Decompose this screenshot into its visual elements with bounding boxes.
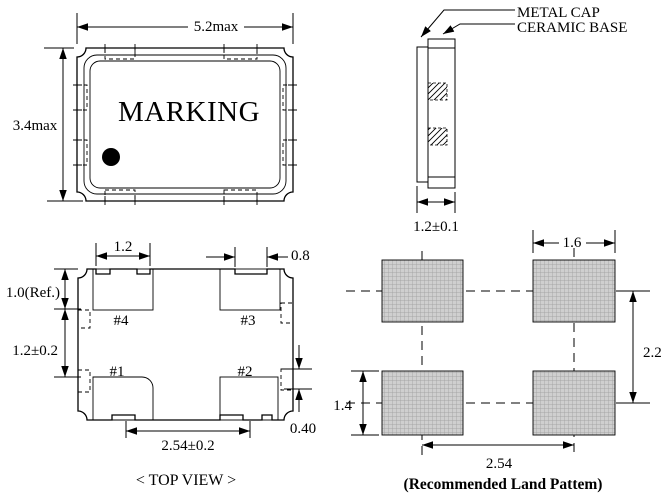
dim-package-thickness: 1.2±0.1 <box>413 186 459 235</box>
side-castellation-pad-upper <box>428 83 447 100</box>
land-pad-top-right <box>533 260 615 322</box>
dim-package-height: 3.4max <box>13 48 83 201</box>
ceramic-base-leader <box>443 24 515 34</box>
land-pad-bottom-left <box>382 371 463 435</box>
package-pad-view: #4 #3 #1 #2 1.2 0.8 1.0(Ref.) <box>6 239 316 489</box>
metal-cap-label: METAL CAP <box>517 5 600 21</box>
dim-castellation-label: 0.40 <box>290 421 316 437</box>
pin1-indicator-dot <box>102 148 120 166</box>
land-pad-top-left <box>382 260 463 322</box>
package-side-view: METAL CAP CERAMIC BASE 1.2±0.1 <box>413 5 627 235</box>
ceramic-base-label: CERAMIC BASE <box>517 20 627 36</box>
dim-land-width-label: 1.6 <box>563 235 582 251</box>
dim-land-col-pitch: 2.54 <box>422 445 574 472</box>
dim-pad-gap-label: 1.2±0.2 <box>12 343 58 359</box>
pad2-label: #2 <box>238 364 253 380</box>
ceramic-base-shape <box>428 39 455 188</box>
dim-pad-gap: 1.2±0.2 <box>12 309 81 377</box>
dim-notch-width: 0.8 <box>206 247 310 267</box>
dim-land-height-label: 1.4 <box>333 398 352 414</box>
side-castellation-pad-lower <box>428 128 447 145</box>
component-dimension-drawing: MARKING 5.2max 3.4max METAL CAP CERAMIC … <box>0 0 661 495</box>
pad1-label: #1 <box>110 364 125 380</box>
dim-col-pitch-label: 2.54 <box>486 456 513 472</box>
dim-land-pad-height: 1.4 <box>333 371 379 435</box>
dim-row-pitch-label: 2.2 <box>643 345 661 361</box>
pad-view-outline <box>78 269 293 420</box>
land-pattern-caption: (Recommended Land Pattem) <box>404 476 603 493</box>
dim-package-width: 5.2max <box>77 13 293 44</box>
dim-height-label: 3.4max <box>13 118 58 134</box>
top-view-caption: < TOP VIEW > <box>136 472 236 489</box>
land-pattern-view: 1.6 2.2 1.4 2.54 (Recommended Land Patte… <box>333 230 661 493</box>
dim-pad-pitch-label: 2.54±0.2 <box>161 438 214 454</box>
dim-pad-pitch: 2.54±0.2 <box>126 421 250 454</box>
dim-pad-width-label: 1.2 <box>114 239 133 255</box>
dim-land-row-pitch: 2.2 <box>617 291 661 403</box>
pad4-label: #4 <box>114 313 130 329</box>
marking-text: MARKING <box>118 96 260 128</box>
package-top-view: MARKING 5.2max 3.4max <box>13 13 297 205</box>
dim-notch-width-label: 0.8 <box>291 248 310 264</box>
dimension-drawing-page: MARKING 5.2max 3.4max METAL CAP CERAMIC … <box>0 0 661 495</box>
pad3-label: #3 <box>241 313 256 329</box>
dim-pad-depth: 1.0(Ref.) <box>6 269 81 309</box>
dim-pad-depth-label: 1.0(Ref.) <box>6 285 60 301</box>
dim-pad-width: 1.2 <box>96 239 150 266</box>
land-pad-bottom-right <box>533 371 615 435</box>
dim-land-pad-width: 1.6 <box>533 230 615 253</box>
metal-cap-shape <box>417 47 428 182</box>
dim-width-label: 5.2max <box>194 19 239 35</box>
dim-thickness-label: 1.2±0.1 <box>413 219 459 235</box>
